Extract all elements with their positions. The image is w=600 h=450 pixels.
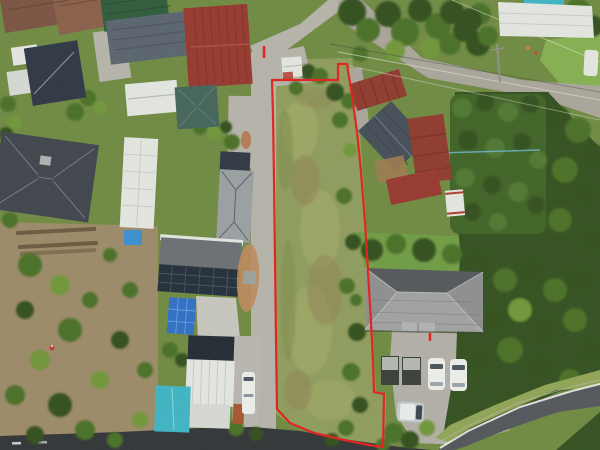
- aerial-photo-canvas: [0, 0, 600, 450]
- aerial-photo: [0, 0, 600, 450]
- photo-grain: [0, 0, 600, 450]
